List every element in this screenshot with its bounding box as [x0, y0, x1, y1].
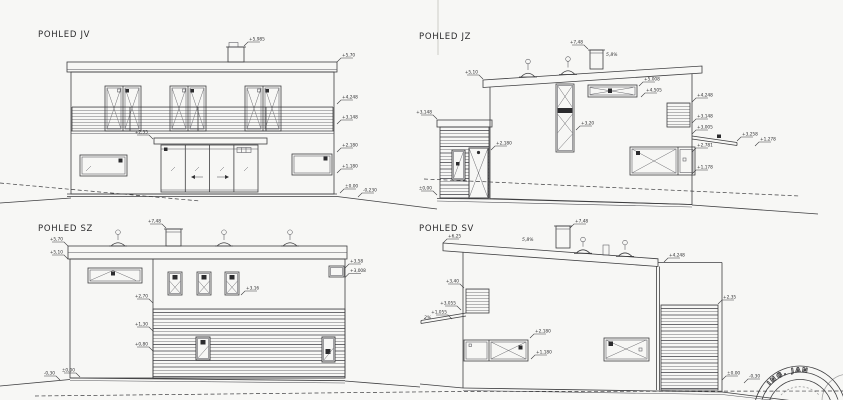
marker-value: +3,148 — [342, 115, 358, 121]
sz-small-window — [225, 272, 239, 295]
sz-terrain-right — [345, 381, 420, 387]
marker-value: +3,005 — [697, 125, 713, 131]
sv-chimney — [554, 226, 572, 248]
sv-roof-stub — [603, 245, 609, 255]
marker-value: -0,30 — [749, 374, 760, 380]
jz-tall-window — [556, 84, 574, 152]
marker-value: +3,055 — [440, 301, 456, 307]
elevation-view-sv: +6,25 +7,48 5,8% +4,248 +3,40 +3,055 +1,… — [420, 219, 802, 400]
drawing-sheet: POHLED JV POHLED JZ POHLED SZ POHLED SV — [0, 0, 843, 400]
elevation-marker: +7,48 — [570, 219, 588, 229]
elevation-marker: +4,248 — [664, 253, 685, 263]
marker-value: +2,180 — [342, 143, 358, 149]
sz-small-window — [168, 272, 182, 295]
marker-value: +3,58 — [350, 259, 363, 265]
marker-value: +3,20 — [581, 121, 594, 127]
marker-value: +4,248 — [697, 93, 713, 99]
elevation-marker: +1,180 — [531, 350, 552, 360]
sz-siding-window — [322, 337, 335, 362]
elevation-marker: +7,48 — [148, 219, 166, 229]
marker-value: -0,30 — [44, 371, 55, 377]
elevation-marker: +2,70 — [135, 294, 153, 304]
sv-siding-panel — [661, 305, 718, 390]
marker-value: ±0,00 — [727, 371, 740, 377]
marker-value: +3,148 — [697, 114, 713, 120]
elevation-marker: +4,505 — [641, 88, 662, 98]
elevation-marker: +5,10 — [50, 250, 68, 260]
elevation-marker: +5,10 — [465, 70, 483, 80]
jz-terrain-right — [692, 205, 818, 214]
authorization-stamp: ING. JAN — [754, 366, 843, 400]
jz-slit-window — [588, 85, 637, 97]
elevation-marker: +3,148 — [416, 110, 437, 120]
jz-roof-vent — [559, 57, 577, 75]
marker-value: +3,008 — [350, 268, 366, 274]
jv-chimney — [226, 43, 246, 63]
elevation-marker: ±0,00 — [62, 368, 80, 378]
marker-value: +0,80 — [135, 342, 148, 348]
sv-stairs — [466, 289, 489, 313]
elevation-marker: -0,30 — [44, 371, 60, 381]
stamp-second-circle — [822, 374, 843, 400]
marker-value: +3,148 — [416, 110, 432, 116]
marker-value: +2,180 — [535, 329, 551, 335]
elevation-marker: +5,70 — [50, 237, 68, 247]
marker-value: +7,48 — [570, 40, 583, 46]
marker-value: 5,8% — [606, 52, 618, 58]
jv-window-right — [292, 154, 332, 175]
elevation-marker: +4,248 — [337, 95, 358, 105]
marker-value: +6,25 — [448, 234, 461, 240]
elevation-marker: +1,055 — [431, 310, 452, 320]
sz-siding-window — [196, 337, 210, 360]
roof-slope-label: 5,8% — [606, 52, 618, 58]
marker-value: +2,70 — [135, 294, 148, 300]
marker-value: +5,10 — [50, 250, 63, 256]
sz-roof-vent — [215, 230, 233, 246]
sz-roof-vent — [281, 230, 299, 246]
elevation-view-jv: +5,985 +5,70 +4,248 +3,148 +2,180 +1,180… — [0, 37, 437, 210]
marker-value: +5,985 — [249, 37, 265, 43]
marker-value: +4,248 — [669, 253, 685, 259]
marker-value: +2,781 — [697, 143, 713, 149]
elevation-marker: +2,180 — [491, 141, 512, 151]
marker-value: +1,180 — [342, 164, 358, 170]
elevation-marker: +0,80 — [135, 342, 153, 352]
sv-window-left — [464, 340, 528, 361]
sv-roof-vent — [574, 237, 592, 253]
elevation-marker: +4,248 — [692, 93, 713, 103]
elevation-marker: ±0,00 — [722, 371, 740, 381]
elevation-marker: +6,25 — [443, 234, 461, 244]
marker-value: +2,180 — [496, 141, 512, 147]
drawing-canvas: +5,985 +5,70 +4,248 +3,148 +2,180 +1,180… — [0, 0, 843, 400]
jz-chimney — [588, 50, 605, 69]
jz-stair-railing — [667, 103, 690, 127]
elevation-marker: +3,148 — [692, 114, 713, 124]
elevation-marker: +3,20 — [576, 121, 594, 131]
elevation-marker: +3,58 — [345, 259, 363, 269]
elevation-marker: +3,148 — [337, 115, 358, 125]
marker-value: +5,70 — [342, 53, 355, 59]
sz-terrain-left — [0, 380, 70, 387]
jv-terrain-right — [337, 197, 437, 210]
marker-value: ±0,00 — [345, 184, 358, 190]
sz-siding-panel — [153, 309, 345, 378]
marker-value: +5,10 — [465, 70, 478, 76]
jv-canopy — [154, 138, 267, 144]
jv-terrain-left — [0, 198, 71, 203]
jz-roof-vent — [519, 59, 537, 77]
marker-value: +3,258 — [742, 132, 758, 138]
slope-label: 2% — [424, 315, 431, 321]
sv-terrain-left — [420, 384, 463, 388]
elevation-marker: +1,278 — [755, 137, 776, 147]
marker-value: +1,055 — [431, 310, 447, 316]
sv-window-right — [604, 338, 649, 361]
elevation-marker: +3,16 — [241, 286, 259, 296]
sz-window-top-right — [329, 266, 344, 277]
sz-chimney — [164, 229, 183, 246]
marker-value: +5,70 — [50, 237, 63, 243]
marker-value: 2% — [424, 315, 431, 321]
elevation-view-sz: +7,48 +5,70 +5,10 +3,16 +3,58 +3,008 +2,… — [0, 219, 420, 388]
elevation-marker: ±0,00 — [419, 186, 437, 196]
sz-roof-vent — [109, 230, 127, 246]
elevation-marker: -0,230 — [358, 188, 377, 198]
stamp-arc-text: ING. JAN — [766, 366, 810, 387]
elevation-marker: +2,180 — [530, 329, 551, 339]
marker-value: +1,178 — [697, 165, 713, 171]
jv-french-window — [105, 86, 141, 131]
elevation-marker: +1,30 — [135, 322, 153, 332]
jv-window-left — [80, 155, 127, 176]
marker-value: +4,248 — [342, 95, 358, 101]
marker-value: +2,35 — [723, 295, 736, 301]
roof-slope-label: 5,8% — [522, 237, 534, 243]
marker-value: ±0,00 — [419, 186, 432, 192]
elevation-marker: +5,985 — [244, 37, 265, 47]
elevation-marker: +1,180 — [337, 164, 358, 174]
marker-value: +3,16 — [246, 286, 259, 292]
elevation-marker: +3,055 — [440, 301, 461, 311]
jz-window-lower — [630, 147, 695, 175]
elevation-marker: -0,30 — [744, 374, 760, 384]
jv-french-window — [170, 86, 206, 131]
marker-value: +2,35 — [135, 130, 148, 136]
marker-value: 5,8% — [522, 237, 534, 243]
elevation-view-jz: +5,10 +7,48 5,8% +3,148 +2,180 ±0,00 +3,… — [416, 40, 818, 215]
elevation-marker: +3,005 — [692, 125, 713, 135]
sv-roof-vent — [616, 240, 634, 256]
stamp-inner-text-arc — [781, 387, 819, 395]
sz-window-left — [88, 268, 142, 283]
jz-annexe — [437, 120, 492, 198]
elevation-marker: +5,008 — [639, 77, 660, 87]
marker-value: ±0,00 — [62, 368, 75, 374]
marker-value: -0,230 — [363, 188, 377, 194]
elevation-marker: +3,258 — [737, 132, 758, 142]
elevation-marker: +3,40 — [446, 279, 464, 289]
marker-value: +1,30 — [135, 322, 148, 328]
marker-value: +1,180 — [536, 350, 552, 356]
marker-value: +5,008 — [644, 77, 660, 83]
elevation-marker: +2,180 — [337, 143, 358, 153]
elevation-marker: +3,008 — [345, 268, 366, 278]
jv-french-window — [245, 86, 281, 131]
elevation-marker: ±0,00 — [340, 184, 358, 194]
marker-value: +7,48 — [575, 219, 588, 225]
marker-value: +3,40 — [446, 279, 459, 285]
marker-value: +1,278 — [760, 137, 776, 143]
marker-value: +4,505 — [646, 88, 662, 94]
elevation-marker: +7,48 — [570, 40, 588, 50]
jv-sliding-door — [161, 145, 258, 192]
marker-value: +7,48 — [148, 219, 161, 225]
elevation-marker: +2,35 — [718, 295, 736, 305]
sz-small-window — [197, 272, 211, 295]
elevation-marker: +5,70 — [337, 53, 355, 63]
